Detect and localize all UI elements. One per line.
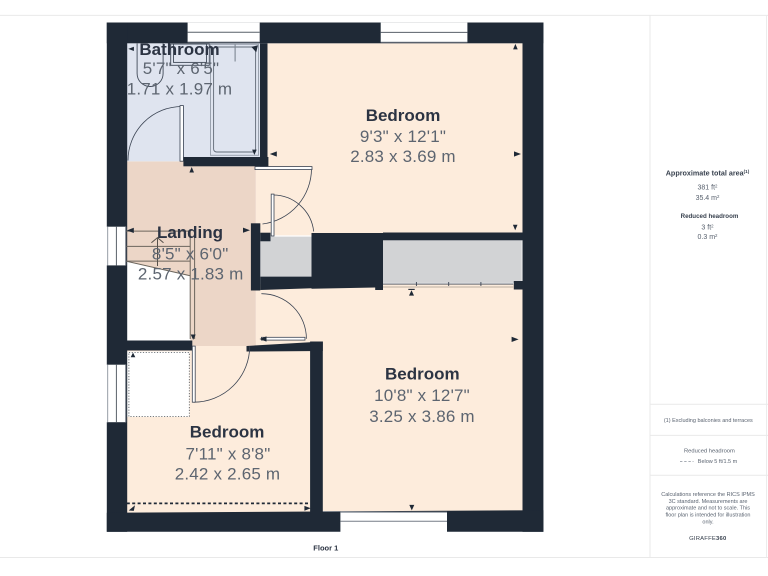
svg-text:Bathroom: Bathroom bbox=[139, 40, 219, 59]
svg-text:0.3 m2: 0.3 m2 bbox=[698, 233, 719, 241]
svg-text:Reduced headroom: Reduced headroom bbox=[684, 448, 735, 454]
svg-text:(1) Excluding balconies and te: (1) Excluding balconies and terraces bbox=[664, 418, 753, 424]
svg-text:2.42 x 2.65 m: 2.42 x 2.65 m bbox=[175, 464, 281, 483]
svg-text:Calculations reference the RIC: Calculations reference the RICS IPMS bbox=[661, 492, 755, 498]
svg-text:5'7" x 6'5": 5'7" x 6'5" bbox=[143, 59, 220, 78]
svg-text:Approximate total area(1): Approximate total area(1) bbox=[666, 169, 750, 178]
svg-text:only.: only. bbox=[702, 520, 714, 526]
svg-text:381 ft2: 381 ft2 bbox=[698, 183, 719, 191]
svg-text:GIRAFFE360: GIRAFFE360 bbox=[689, 536, 727, 542]
svg-text:8'5" x 6'0": 8'5" x 6'0" bbox=[152, 245, 229, 264]
svg-text:9'3" x 12'1": 9'3" x 12'1" bbox=[360, 127, 446, 146]
svg-text:35.4 m2: 35.4 m2 bbox=[696, 194, 720, 202]
svg-text:approximate and not to scale.: approximate and not to scale. This bbox=[666, 506, 750, 512]
svg-text:3.25 x 3.86 m: 3.25 x 3.86 m bbox=[369, 407, 475, 426]
svg-text:Below 5 ft/1.5 m: Below 5 ft/1.5 m bbox=[698, 459, 738, 465]
svg-text:10'8" x 12'7": 10'8" x 12'7" bbox=[374, 386, 470, 405]
svg-text:3C standard. Measurements are: 3C standard. Measurements are bbox=[669, 499, 748, 505]
svg-text:Floor 1: Floor 1 bbox=[313, 543, 338, 552]
svg-text:Bedroom: Bedroom bbox=[190, 423, 265, 442]
svg-text:floor plan is intended for ill: floor plan is intended for illustration bbox=[666, 513, 751, 519]
svg-text:Reduced headroom: Reduced headroom bbox=[681, 213, 739, 220]
svg-text:1.71 x 1.97 m: 1.71 x 1.97 m bbox=[127, 80, 233, 99]
svg-text:Bedroom: Bedroom bbox=[366, 106, 441, 125]
svg-text:Bedroom: Bedroom bbox=[385, 364, 460, 383]
svg-text:Landing: Landing bbox=[157, 223, 223, 242]
svg-text:7'11" x 8'8": 7'11" x 8'8" bbox=[186, 445, 271, 464]
svg-text:2.57 x 1.83 m: 2.57 x 1.83 m bbox=[138, 264, 244, 283]
svg-text:2.83 x 3.69 m: 2.83 x 3.69 m bbox=[350, 147, 456, 166]
